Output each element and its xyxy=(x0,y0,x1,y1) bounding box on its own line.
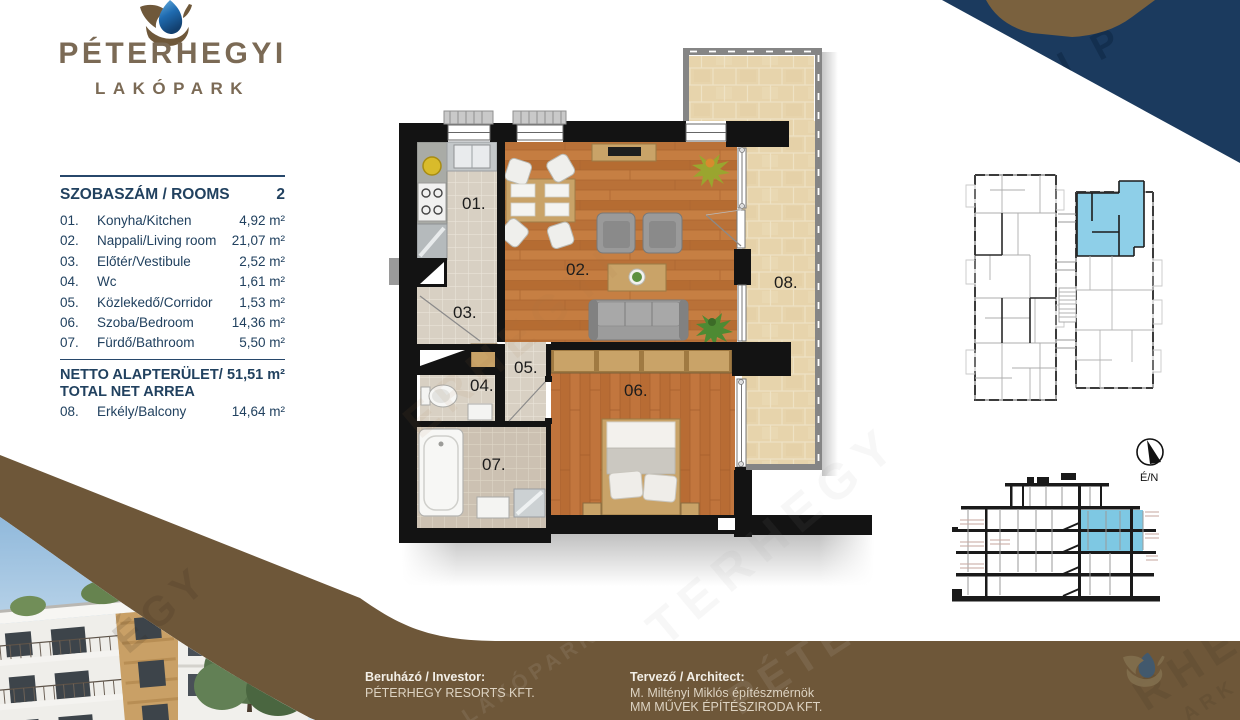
svg-text:É/N: É/N xyxy=(1140,471,1158,484)
svg-text:06.: 06. xyxy=(624,381,648,400)
svg-text:03.: 03. xyxy=(453,303,477,322)
svg-text:07.: 07. xyxy=(482,455,506,474)
svg-text:01.: 01. xyxy=(462,194,486,213)
svg-text:08.: 08. xyxy=(774,273,798,292)
